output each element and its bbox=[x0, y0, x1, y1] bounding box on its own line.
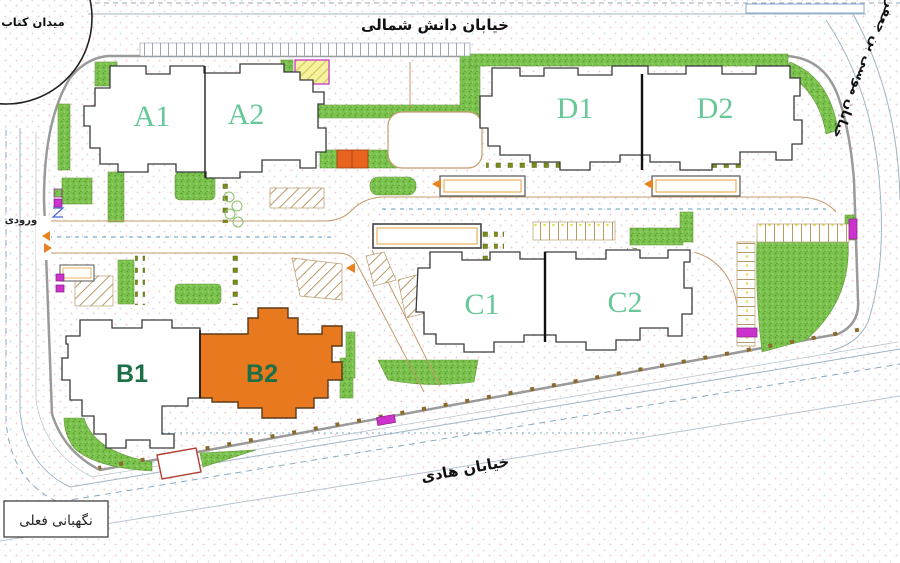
road-arrow-icon bbox=[432, 179, 441, 189]
building-d1-label: D1 bbox=[557, 92, 594, 125]
carport-bar bbox=[440, 176, 525, 196]
tree-dots bbox=[222, 178, 232, 223]
grass-patch bbox=[108, 172, 124, 222]
grass-patch bbox=[680, 212, 693, 242]
parking-row-center bbox=[533, 222, 615, 240]
carport-bar bbox=[60, 265, 94, 281]
grass-patch bbox=[370, 177, 416, 195]
grass-patch-south-c bbox=[378, 360, 478, 385]
car-icon bbox=[56, 274, 64, 281]
building-a2-label: A2 bbox=[228, 98, 265, 131]
grass-patch bbox=[175, 284, 221, 304]
building-b1-label: B1 bbox=[116, 360, 148, 388]
car-icon bbox=[54, 199, 62, 207]
car-icon bbox=[737, 328, 757, 337]
carport-bar bbox=[652, 176, 740, 196]
parking-diag-d bbox=[366, 252, 396, 286]
parking-fan bbox=[292, 258, 342, 300]
street-label-south: خیابان هادی bbox=[420, 452, 511, 486]
transformer-block bbox=[337, 150, 368, 168]
building-a1-label: A1 bbox=[134, 100, 171, 133]
grass-patch bbox=[630, 228, 683, 245]
building-b2-label: B2 bbox=[246, 360, 278, 388]
grass-patch bbox=[346, 332, 355, 378]
road-arrow-icon bbox=[644, 179, 653, 189]
grass-patch bbox=[62, 178, 92, 204]
gate-symbol bbox=[53, 208, 63, 217]
parking-row-north bbox=[140, 43, 470, 56]
building-d2-label: D2 bbox=[697, 92, 734, 125]
tree-dots bbox=[230, 255, 240, 305]
ketab-square-label: میدان کتاب bbox=[1, 15, 64, 29]
tree-icon bbox=[233, 217, 243, 227]
grass-wedge-guard bbox=[200, 450, 256, 467]
grass-patch bbox=[58, 104, 70, 170]
grass-patch bbox=[118, 260, 134, 304]
grass-strip-north-d bbox=[470, 54, 788, 66]
grass-patch bbox=[320, 150, 337, 168]
tree-dots bbox=[135, 255, 145, 305]
car-icon bbox=[849, 219, 857, 239]
gate-kiosk bbox=[54, 189, 62, 197]
building-c-block bbox=[416, 250, 692, 352]
building-c2-label: C2 bbox=[607, 286, 642, 319]
bus-bay-outline bbox=[746, 4, 864, 13]
road-arrow-icon bbox=[346, 263, 355, 273]
plaza-pad bbox=[388, 112, 482, 168]
building-c1-label: C1 bbox=[464, 288, 499, 321]
entrance-label: ورودی bbox=[5, 215, 38, 226]
site-plan-canvas: خیابان دانش شمالی خیابان موسی بن جعفر خی… bbox=[0, 0, 900, 563]
site-plan-drawing: خیابان دانش شمالی خیابان موسی بن جعفر خی… bbox=[0, 0, 900, 563]
carport-bar bbox=[373, 224, 481, 248]
tree-icon bbox=[232, 201, 242, 211]
car-icon bbox=[56, 285, 64, 292]
parking-diag-a bbox=[270, 188, 324, 208]
street-label-east: خیابان موسی بن جعفر bbox=[829, 0, 898, 140]
parking-row-east-top bbox=[757, 224, 849, 242]
guard-post-label: نگهبانی فعلی bbox=[19, 512, 93, 529]
street-label-north: خیابان دانش شمالی bbox=[361, 16, 509, 34]
